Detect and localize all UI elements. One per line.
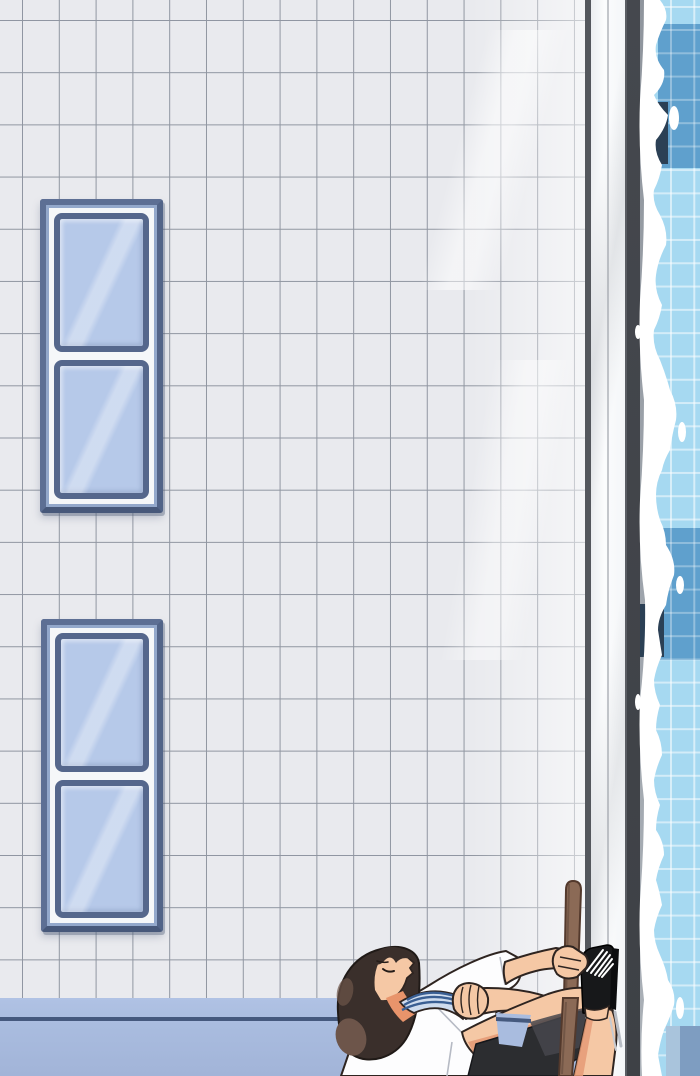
window-upper [40,199,163,513]
foam-bubble [669,106,679,130]
foam-bubble [678,422,686,442]
foam-bubble [635,694,641,710]
window-lower-pane-bottom [55,780,149,919]
wall-highlight-streak-top [400,30,580,290]
wall-highlight-streak-middle [430,360,586,660]
window-lower-pane-top [55,633,149,772]
window-upper-pane-top [54,213,149,352]
window-lower-frame [50,628,154,923]
window-upper-frame [49,208,154,504]
foam-bubble [635,325,641,339]
window-upper-pane-bottom [54,360,149,499]
foam-bubble [676,576,684,594]
boy-character [325,855,700,1076]
stage [0,0,700,1076]
window-lower [41,619,163,932]
